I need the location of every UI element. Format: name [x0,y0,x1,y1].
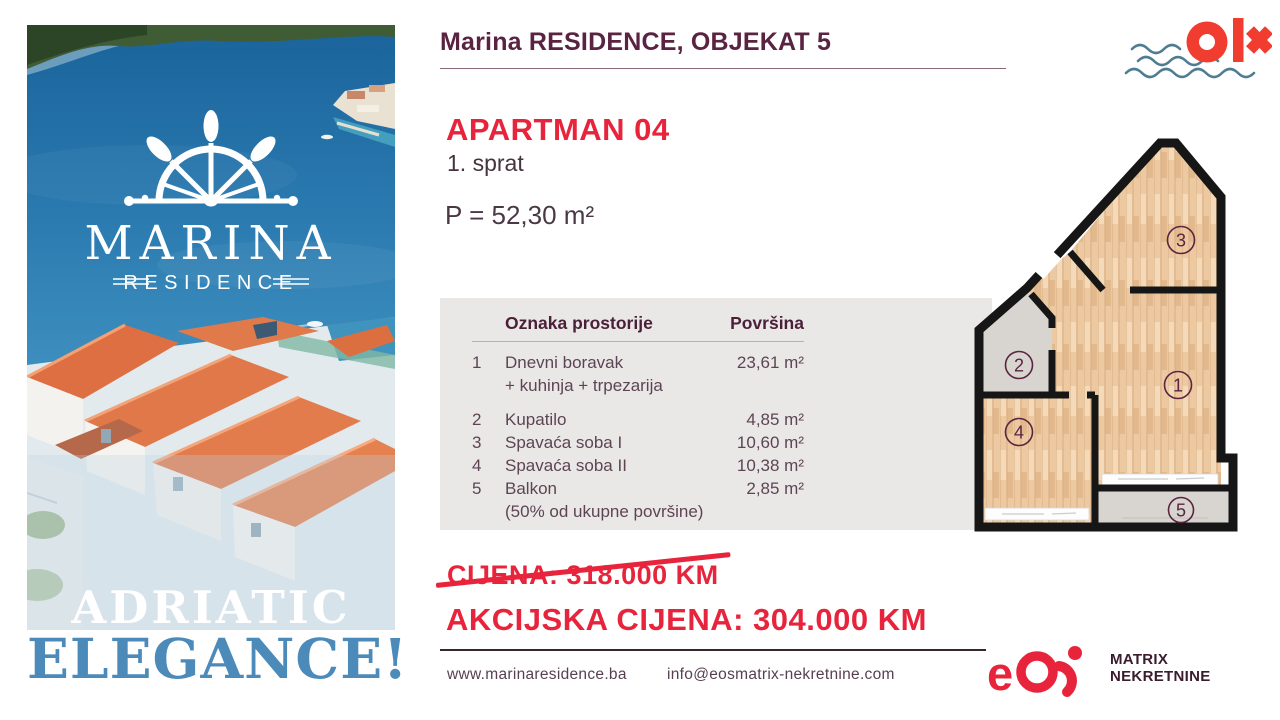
table-row: 2 Kupatilo 4,85 m² [472,408,804,431]
tagline-adriatic-text: ADRIATIC [70,581,350,630]
flyer-page: MARINA RESIDENCE [0,0,1280,720]
room-name: Kupatilo [505,408,704,431]
row-number: 2 [472,408,505,431]
apartment-name: APARTMAN 04 [446,112,670,148]
page-title: Marina RESIDENCE, OBJEKAT 5 [440,28,831,57]
olx-x-icon [1250,30,1269,50]
row-number: 3 [472,431,505,454]
title-underline [440,68,1006,69]
room-name: Balkon [505,477,704,500]
apartment-floor: 1. sprat [447,150,524,177]
room-table: Oznaka prostorije Površina 1 Dnevni bora… [440,298,992,530]
agency-name: MATRIX NEKRETNINE [1110,651,1211,685]
brand-marina-text: MARINA [84,216,337,271]
room-name: Dnevni boravak [505,351,704,374]
olx-bar-icon [1233,18,1244,62]
brand-residence-text: RESIDENCE [123,272,298,294]
room-4-floor [979,395,1095,527]
room-area: 4,85 m² [704,408,804,431]
eos-e-glyph: e [987,647,1013,700]
website-text: www.marinaresidence.ba [447,666,627,684]
eos-o-glyph [1021,656,1053,688]
eos-s-swoosh [1059,666,1072,692]
eos-s-dot [1068,646,1082,660]
room-area: 10,60 m² [704,431,804,454]
olx-logo [1122,12,1272,91]
row-number: 5 [472,477,505,500]
header-rule [472,341,804,342]
table-row: 3 Spavaća soba I 10,60 m² [472,431,804,454]
row-number: 1 [472,351,505,374]
eos-logo: e [986,640,1101,707]
row-number: 4 [472,454,505,477]
apartment-total-area: P = 52,30 m² [445,200,594,231]
new-price: AKCIJSKA CIJENA: 304.000 KM [446,602,927,638]
room-number-badge: 4 [1014,423,1024,443]
room-area: 2,85 m² [704,477,804,500]
sea-aerial-image: MARINA RESIDENCE [27,25,395,630]
room-area: 23,61 m² [704,351,804,374]
table-row: 5 Balkon 2,85 m² [472,477,804,500]
room-name: Spavaća soba I [505,431,704,454]
agency-name-line2: NEKRETNINE [1110,668,1211,685]
seaside-photo: MARINA RESIDENCE [27,25,395,630]
table-row: 4 Spavaća soba II 10,38 m² [472,454,804,477]
email-text: info@eosmatrix-nekretnine.com [667,666,895,684]
room-number-badge: 2 [1014,356,1024,376]
tagline-elegance-text: ELEGANCE! [27,626,395,691]
table-header-row: Oznaka prostorije Površina [472,312,804,335]
room-area: 10,38 m² [704,454,804,477]
old-price: CIJENA: 318.000 KM [447,560,719,591]
room-name-line2: (50% od ukupne površine) [505,500,804,523]
room-number-badge: 3 [1176,231,1186,251]
col-label-header: Oznaka prostorije [505,312,704,335]
room-name-line2: + kuhinja + trpezarija [505,374,804,397]
col-area-header: Površina [704,312,804,335]
footer-divider [440,649,986,651]
floor-plan-image: 1 2 3 4 5 [972,130,1240,537]
table-row: 1 Dnevni boravak 23,61 m² [472,351,804,374]
room-5-floor [1095,488,1233,527]
room-name: Spavaća soba II [505,454,704,477]
room-number-badge: 5 [1176,501,1186,521]
room-number-badge: 1 [1173,376,1183,396]
agency-name-line1: MATRIX [1110,651,1211,668]
